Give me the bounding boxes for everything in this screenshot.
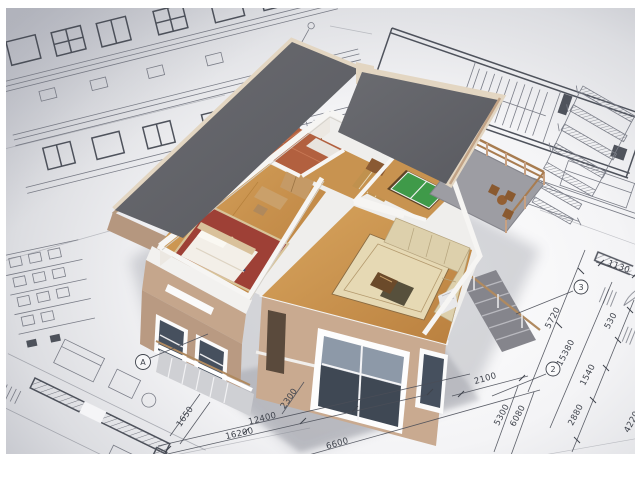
grid-axis-bubble: 3: [574, 280, 588, 294]
entrance-door: [266, 310, 286, 374]
blueprint-house-scene: 1650 16200 12400 2300 6600 2100 5300 608…: [0, 0, 640, 480]
scene-canvas: 1650 16200 12400 2300 6600 2100 5300 608…: [0, 0, 640, 480]
side-window: [415, 348, 448, 414]
grid-axis-bubble: A: [136, 355, 151, 370]
grid-axis-bubble-label: 2: [550, 365, 555, 374]
grid-axis-bubble: 2: [546, 362, 560, 376]
grid-axis-bubble-label: 3: [578, 283, 583, 292]
grid-axis-bubble-label: A: [140, 358, 146, 367]
